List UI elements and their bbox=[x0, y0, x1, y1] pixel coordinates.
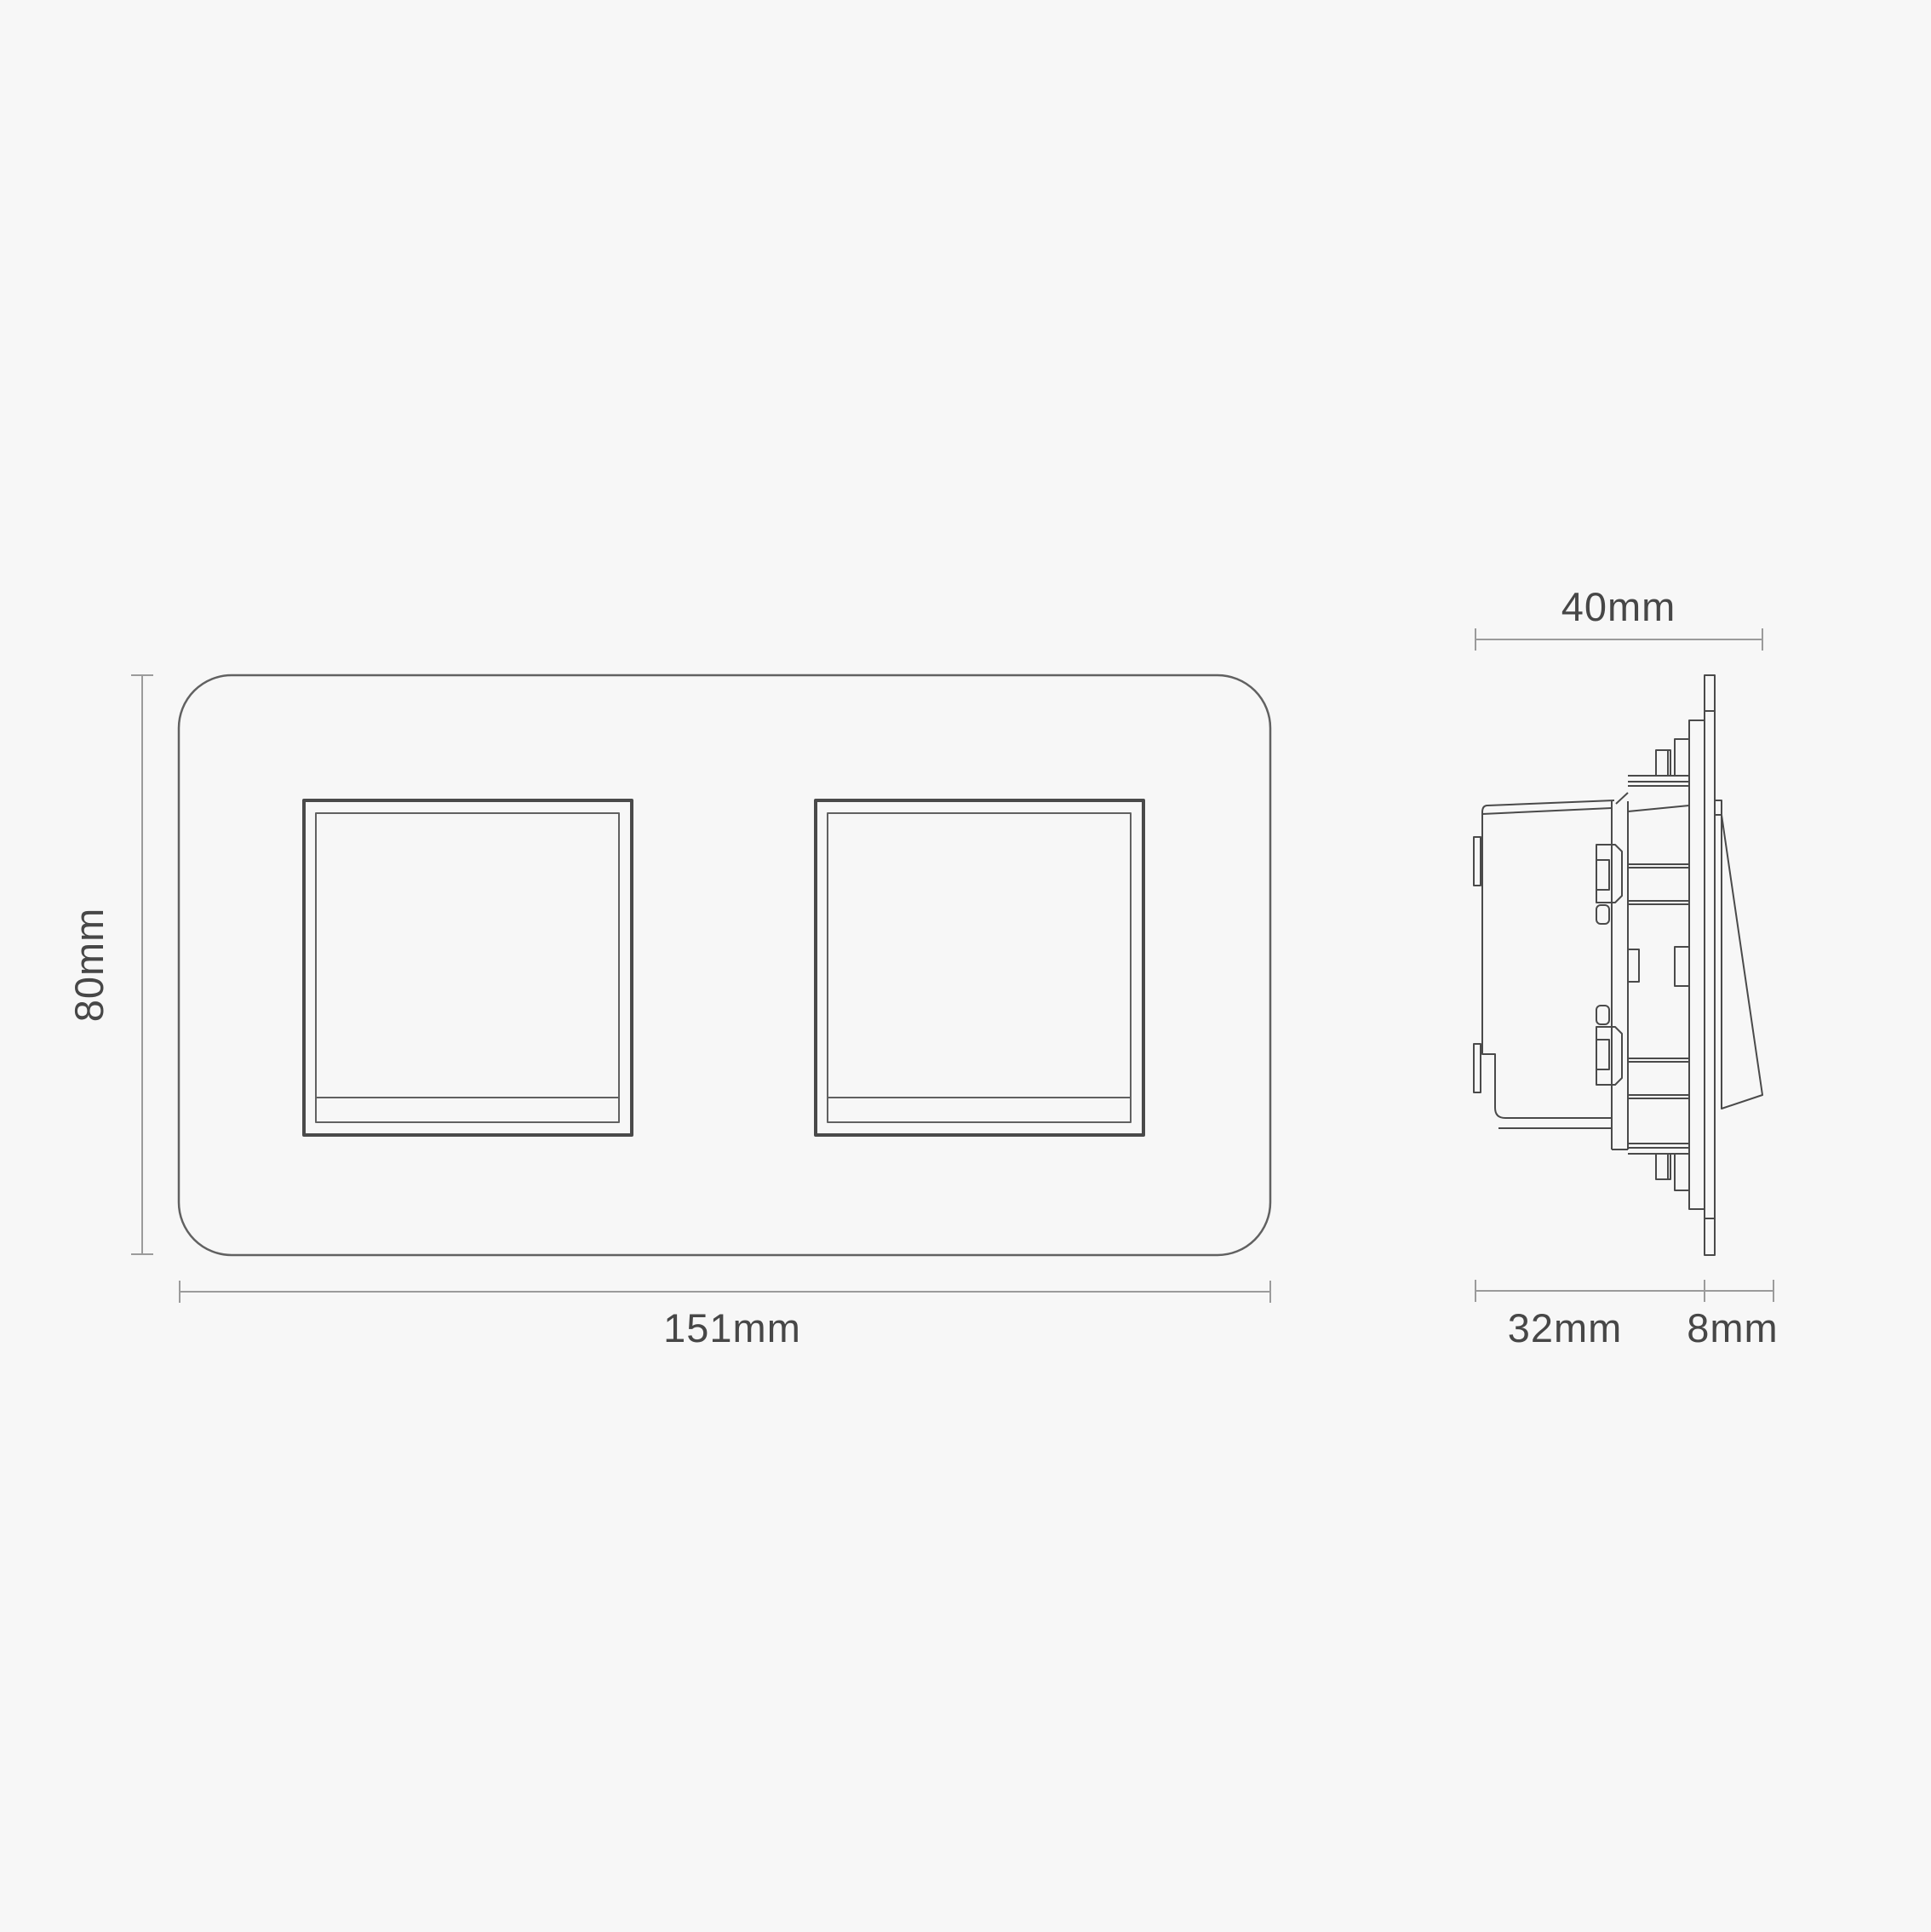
height-dimension-line bbox=[131, 675, 153, 1254]
dimension-lines bbox=[131, 628, 1773, 1303]
side-mounting-box bbox=[1474, 800, 1614, 1128]
box-depth-dimension-label: 32mm bbox=[1508, 1305, 1623, 1350]
width-dimension-line bbox=[180, 1281, 1270, 1303]
side-rocker bbox=[1715, 800, 1762, 1109]
switch-right-outer-frame bbox=[816, 800, 1143, 1135]
side-mechanism bbox=[1596, 720, 1705, 1209]
side-plate bbox=[1705, 675, 1715, 1255]
switch-left-rocker bbox=[316, 813, 619, 1122]
total-depth-dimension-label: 40mm bbox=[1561, 584, 1676, 629]
width-dimension-label: 151mm bbox=[663, 1305, 801, 1350]
switch-left-outer-frame bbox=[304, 800, 632, 1135]
switch-right-rocker bbox=[828, 813, 1131, 1122]
switch-module-right bbox=[816, 800, 1143, 1135]
front-view bbox=[179, 675, 1270, 1255]
total-depth-dimension-line bbox=[1475, 628, 1762, 651]
dimension-diagram: 80mm 151mm 40mm 32mm 8mm bbox=[0, 0, 1931, 1932]
switch-module-left bbox=[304, 800, 632, 1135]
plate-depth-dimension-label: 8mm bbox=[1687, 1305, 1778, 1350]
box-and-plate-depth-dimension-line bbox=[1475, 1280, 1773, 1302]
dimension-labels: 80mm 151mm 40mm 32mm 8mm bbox=[66, 584, 1779, 1350]
side-view bbox=[1474, 675, 1762, 1255]
height-dimension-label: 80mm bbox=[66, 908, 112, 1023]
front-plate bbox=[179, 675, 1270, 1255]
diagram-svg: 80mm 151mm 40mm 32mm 8mm bbox=[0, 0, 1931, 1932]
